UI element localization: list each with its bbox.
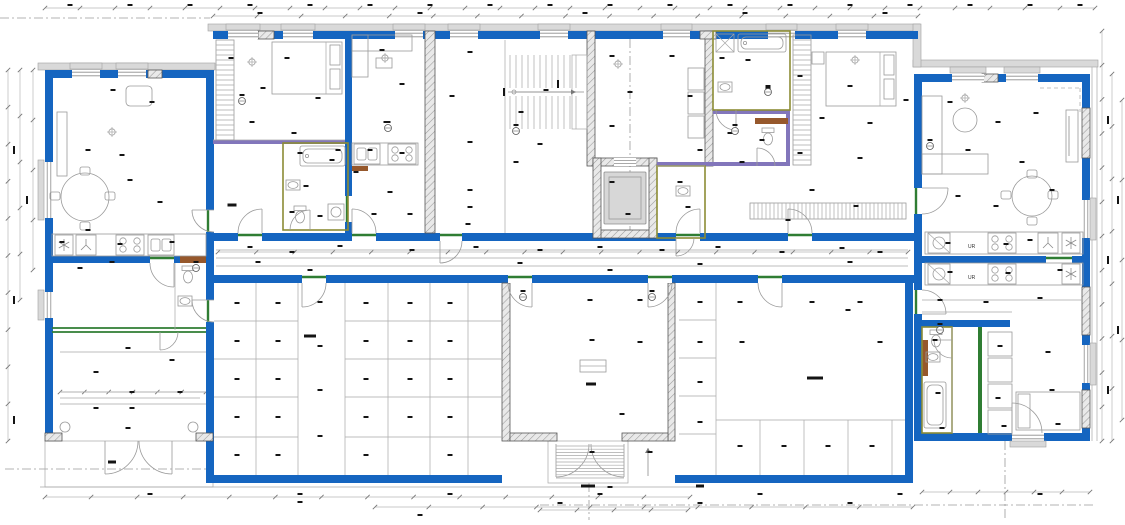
existing-structure-layer	[38, 24, 1098, 487]
door-swing-arcs	[105, 110, 1042, 477]
accent-walls-layer	[52, 31, 982, 433]
floor-plan-page: UR UR	[0, 0, 1125, 525]
floor-plan-canvas: UR UR	[0, 0, 1125, 525]
entrance-lobby	[556, 360, 651, 478]
staircase	[505, 40, 587, 233]
section-lines	[0, 18, 1095, 520]
fridge-label: UR	[968, 244, 976, 250]
elevator	[604, 158, 646, 224]
fridge-label: UR	[968, 275, 976, 281]
